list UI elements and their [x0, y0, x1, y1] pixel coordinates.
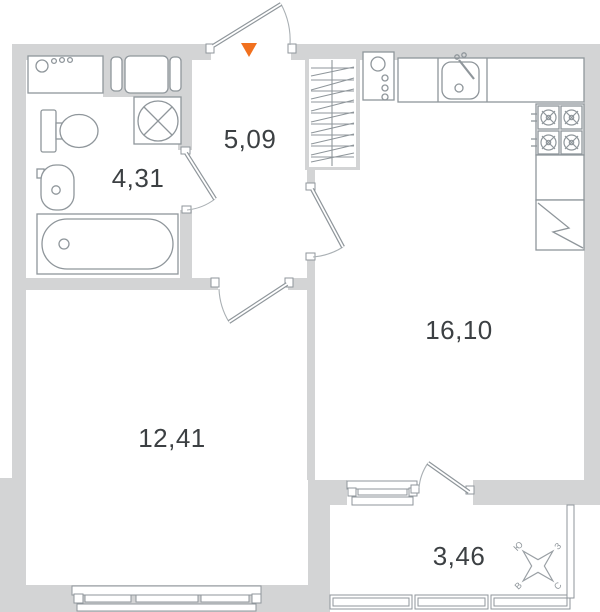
wall-living-kitchen — [307, 258, 315, 480]
wall-hall-living-left — [12, 278, 218, 290]
wall-left — [12, 44, 26, 478]
wardrobe — [309, 59, 356, 167]
wall-kitchen-balcony-right — [473, 480, 600, 505]
living-room-area-label: 12,41 — [138, 423, 206, 453]
kitchen-balcony-window — [347, 481, 417, 505]
kitchen-counter — [398, 58, 584, 102]
stove — [531, 104, 584, 155]
kitchen-door-leaf — [312, 189, 343, 247]
wall-balcony-left — [308, 480, 330, 612]
compass-north-label: С — [552, 580, 564, 592]
bathtub — [37, 214, 178, 274]
toilet — [41, 110, 98, 152]
floor-plan: 5,09 4,31 12,41 16,10 3,46 С В Ю З — [0, 0, 600, 612]
washing-machine — [28, 56, 103, 93]
hallway-area-label: 5,09 — [224, 124, 277, 154]
entrance-door-leaf — [213, 4, 281, 46]
living-room-door-leaf — [229, 284, 287, 322]
wall-right — [584, 44, 600, 505]
balcony-area-label: 3,46 — [433, 541, 486, 571]
floor-plan-canvas: 5,09 4,31 12,41 16,10 3,46 С В Ю З — [0, 0, 600, 612]
balcony-door-leaf — [428, 463, 469, 492]
living-room-window — [72, 586, 261, 611]
kitchen-corner-cabinet — [536, 200, 584, 250]
boiler-unit — [363, 52, 394, 100]
kitchen-fixtures — [363, 52, 584, 250]
room-labels: 5,09 4,31 12,41 16,10 3,46 — [112, 124, 493, 571]
bathroom-door-leaf — [186, 153, 215, 199]
kitchen-cabinet — [536, 155, 584, 200]
entrance-marker-icon — [241, 43, 257, 57]
wash-basin — [37, 165, 74, 210]
balcony-side-wall — [567, 505, 574, 598]
bathroom-cabinet — [111, 56, 181, 93]
bathroom-area-label: 4,31 — [112, 163, 165, 193]
kitchen-area-label: 16,10 — [425, 315, 493, 345]
ventilation-unit — [134, 97, 181, 144]
